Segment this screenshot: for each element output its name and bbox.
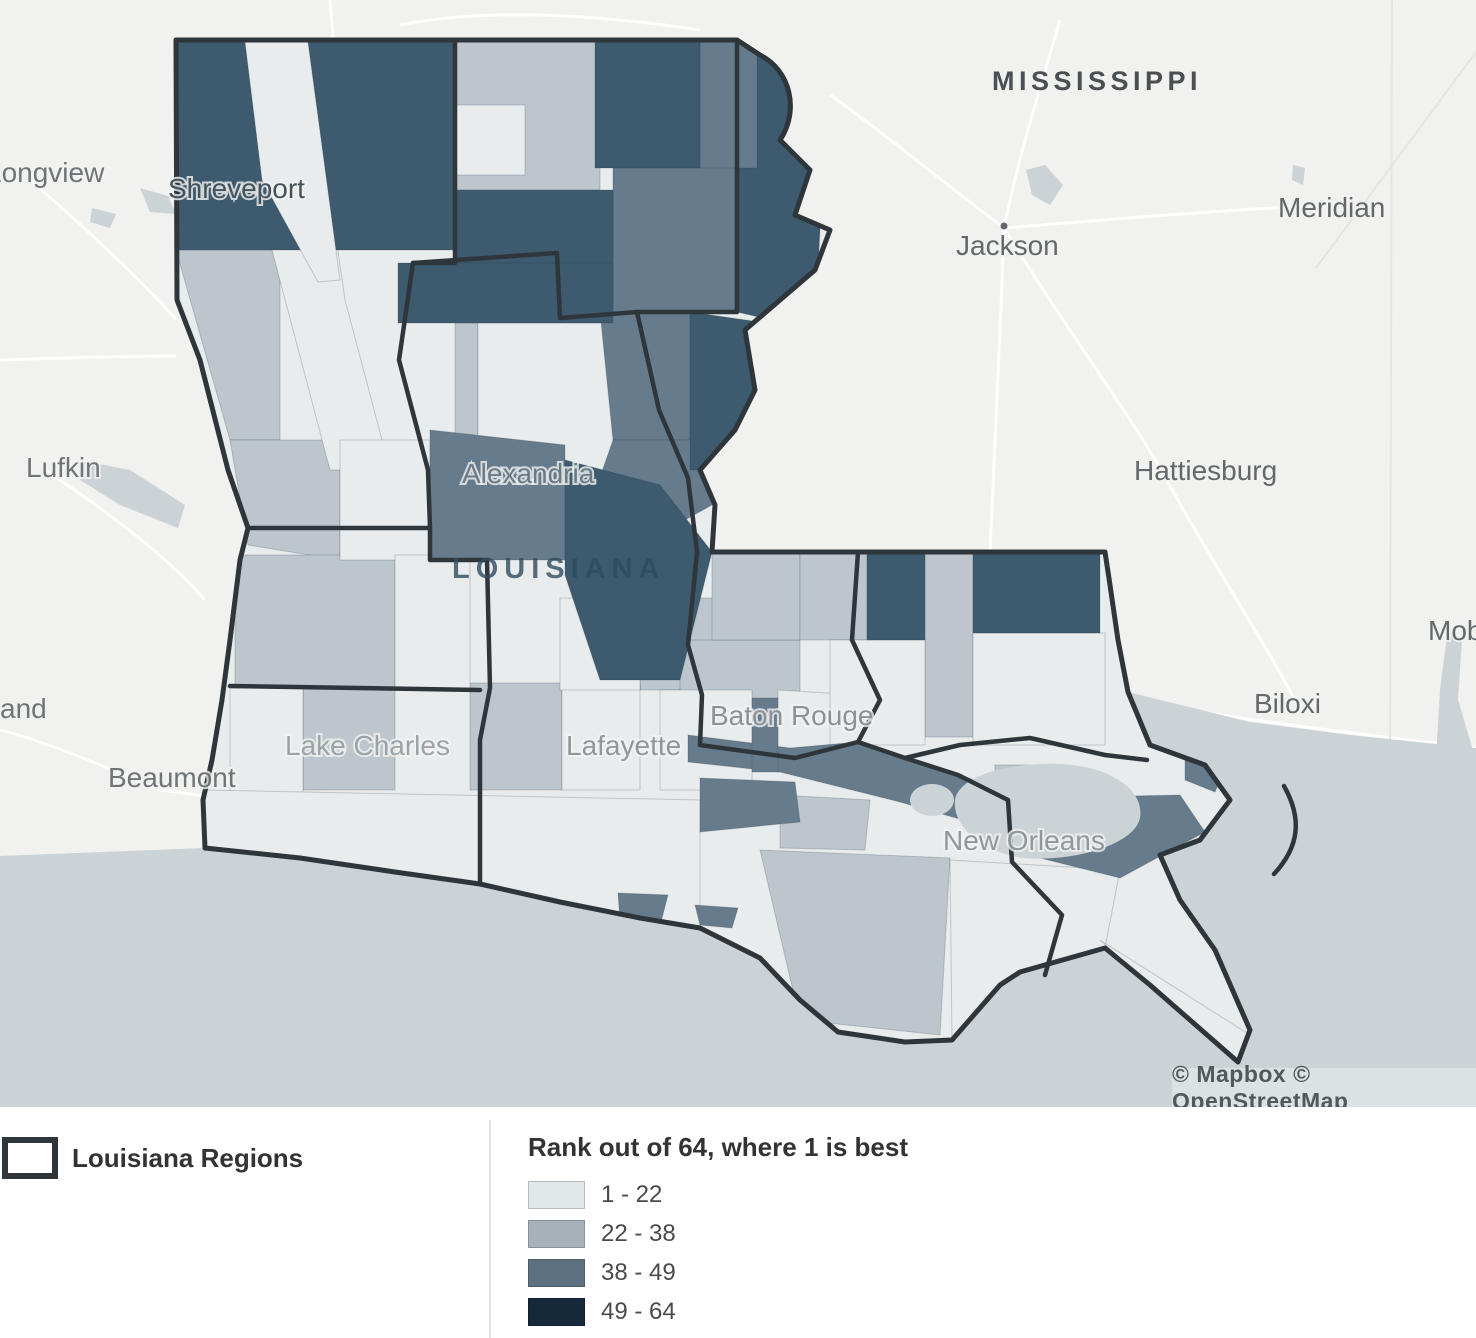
city-label: Biloxi — [1254, 688, 1321, 719]
city-label: Lafayette — [566, 730, 681, 761]
city-label: Shreveport — [168, 173, 305, 204]
city-label: Hattiesburg — [1134, 455, 1277, 486]
rank-color-swatch — [528, 1259, 585, 1287]
rank-legend-item: 22 - 38 — [528, 1220, 908, 1248]
rank-legend: Rank out of 64, where 1 is best 1 - 2222… — [528, 1132, 908, 1337]
map-canvas[interactable]: MISSISSIPPILOUISIANALongviewShreveportLu… — [0, 0, 1476, 1107]
regions-legend: Louisiana Regions — [0, 1137, 303, 1179]
rank-range-label: 49 - 64 — [601, 1298, 676, 1326]
city-label: Alexandria — [462, 458, 595, 489]
city-label: Lake Charles — [285, 730, 450, 761]
rank-legend-items: 1 - 2222 - 3838 - 4949 - 64 — [528, 1181, 908, 1326]
city-label: and — [0, 693, 47, 724]
state-label: LOUISIANA — [452, 553, 666, 585]
rank-color-swatch — [528, 1298, 585, 1326]
city-label: Mobile — [1428, 615, 1476, 646]
city-label: Lufkin — [26, 452, 101, 483]
city-label: Beaumont — [108, 762, 236, 793]
rank-legend-item: 49 - 64 — [528, 1298, 908, 1326]
rank-legend-item: 38 - 49 — [528, 1259, 908, 1287]
rank-color-swatch — [528, 1220, 585, 1248]
lake-maurepas — [910, 784, 954, 816]
rank-range-label: 38 - 49 — [601, 1259, 676, 1287]
city-label: Jackson — [956, 230, 1059, 261]
rank-legend-item: 1 - 22 — [528, 1181, 908, 1209]
dashboard: MISSISSIPPILOUISIANALongviewShreveportLu… — [0, 0, 1476, 1338]
legend-strip: Louisiana Regions Rank out of 64, where … — [0, 1107, 1476, 1338]
city-label: New Orleans — [943, 825, 1105, 856]
city-label: Meridian — [1278, 192, 1385, 223]
louisiana-choropleth-map[interactable]: MISSISSIPPILOUISIANALongviewShreveportLu… — [0, 0, 1476, 1107]
city-label: Longview — [0, 157, 105, 188]
rank-range-label: 22 - 38 — [601, 1220, 676, 1248]
city-dot — [1001, 223, 1008, 230]
map-attribution[interactable]: © Mapbox © OpenStreetMap — [1172, 1068, 1476, 1107]
rank-legend-title: Rank out of 64, where 1 is best — [528, 1132, 908, 1163]
legend-divider — [489, 1120, 491, 1338]
rank-range-label: 1 - 22 — [601, 1181, 662, 1209]
regions-outline-swatch — [2, 1137, 58, 1179]
rank-color-swatch — [528, 1181, 585, 1209]
city-label: Baton Rouge — [710, 700, 873, 731]
state-label: MISSISSIPPI — [992, 66, 1202, 96]
regions-legend-label: Louisiana Regions — [72, 1143, 303, 1174]
